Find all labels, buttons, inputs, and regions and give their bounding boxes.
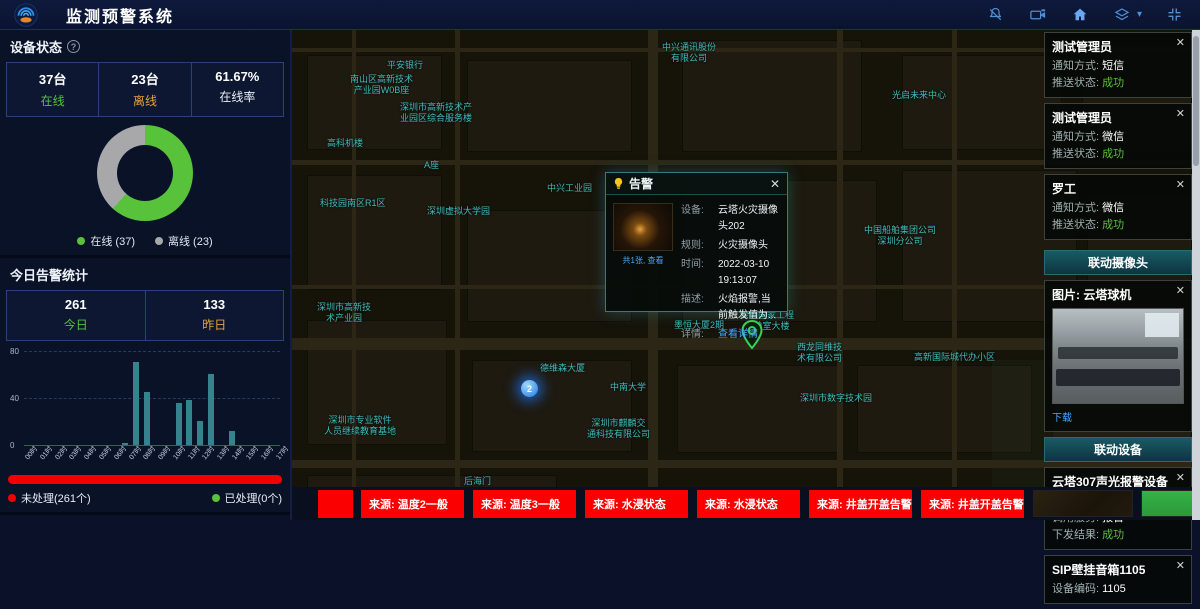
time-row-label: 时间: (681, 257, 713, 289)
x-tick-label: 11时 (185, 444, 202, 461)
x-tick-label: 10时 (171, 444, 188, 462)
unhandled-dot (8, 494, 16, 502)
x-tick-label: 12时 (200, 444, 217, 462)
map-place-label: 深圳市高新技 术产业园 (317, 302, 371, 324)
bar-17时 (205, 374, 216, 445)
linked-camera-header: 联动摄像头 (1044, 250, 1192, 275)
alarm-cluster-marker[interactable]: 2 (521, 380, 538, 397)
alert-ticker-bar: 来源: 温度2一般来源: 温度3一般来源: 水浸状态来源: 水浸状态来源: 井盖… (292, 487, 1200, 520)
desc-row-label: 描述: (681, 292, 713, 324)
close-icon[interactable]: ✕ (1176, 559, 1185, 572)
x-tick-label: 00时 (23, 444, 40, 462)
today-alarms-title: 今日告警统计 (6, 258, 284, 290)
left-stats-panel: 设备状态 ? 37台 在线 23台 离线 61.67% 在线率 在线 (37) … (0, 30, 292, 520)
map-place-label: 科技园南区R1区 (320, 198, 386, 209)
map-place-label: 南山区高新技术 产业园W0B座 (350, 74, 413, 96)
muted-bell-icon[interactable] (987, 6, 1005, 24)
map-place-label: 中国船舶集团公司 深圳分公司 (864, 225, 936, 247)
card-row: 通知方式: 微信 (1052, 200, 1184, 217)
card-row: 通知方式: 微信 (1052, 129, 1184, 146)
today-count: 261 (7, 297, 145, 312)
unhandled-progress-bar (8, 475, 282, 484)
alert-tile[interactable]: 来源: 水浸状态 (585, 490, 688, 518)
device-row-value: 云塔火灾摄像头202 (718, 203, 780, 235)
legend-online-dot (77, 237, 85, 245)
processing-legend: 未处理(261个) 已处理(0个) (8, 490, 282, 506)
alarm-thumb-column: 共1张, 查看 (613, 203, 673, 346)
notification-card: ✕测试管理员通知方式: 微信推送状态: 成功 (1044, 103, 1192, 169)
fire-snapshot-image[interactable] (613, 203, 673, 251)
notification-card: ✕测试管理员通知方式: 短信推送状态: 成功 (1044, 32, 1192, 98)
handled-legend: 已处理(0个) (212, 490, 282, 506)
alarm-bulb-icon (613, 177, 624, 190)
bar-16时 (195, 421, 206, 445)
x-tick-label: 17时 (274, 444, 291, 462)
donut-legend: 在线 (37) 离线 (23) (6, 233, 284, 249)
view-images-link[interactable]: 共1张, 查看 (613, 255, 673, 266)
card-name: 罗工 (1052, 180, 1184, 197)
today-count-cell: 261 今日 (7, 291, 145, 340)
card-row: 推送状态: 成功 (1052, 75, 1184, 92)
bar-series (24, 351, 280, 446)
bar-14时 (173, 403, 184, 445)
close-icon[interactable]: ✕ (1176, 471, 1185, 484)
fullscreen-icon[interactable] (1166, 6, 1184, 24)
yesterday-count-cell: 133 昨日 (145, 291, 284, 340)
today-label: 今日 (7, 316, 145, 333)
alarm-popup-body: 共1张, 查看 设备:云塔火灾摄像头202 规则:火灾摄像头 时间:2022-0… (606, 195, 787, 354)
close-icon[interactable]: ✕ (1176, 284, 1185, 297)
x-tick-label: 01时 (38, 444, 55, 462)
help-icon[interactable]: ? (67, 40, 80, 53)
map-place-label: 德维森大厦 (540, 363, 585, 374)
view-detail-link[interactable]: 查看详情 (718, 327, 758, 343)
card-name: 测试管理员 (1052, 109, 1184, 126)
right-notifications-panel: ✕测试管理员通知方式: 短信推送状态: 成功✕测试管理员通知方式: 微信推送状态… (1044, 32, 1192, 520)
alert-tile[interactable]: 来源: 温度3一般 (473, 490, 576, 518)
alert-tile-partial[interactable] (318, 490, 353, 518)
home-icon[interactable] (1071, 6, 1089, 24)
map-place-label: 西龙同维技 术有限公司 (797, 342, 842, 364)
vertical-scrollbar[interactable] (1192, 30, 1200, 520)
device-status-donut-chart (97, 125, 193, 221)
chevron-down-icon[interactable]: ▾ (1137, 9, 1142, 20)
camera-card: 图片: 云塔球机 ✕ 下载 (1044, 280, 1192, 432)
card-row: 设备编码: 1105 (1052, 581, 1184, 598)
map-place-label: 平安银行 (387, 60, 423, 71)
detail-row-label: 详情: (681, 327, 713, 343)
x-tick-label: 16时 (259, 444, 276, 462)
camera-card-title: 图片: 云塔球机 (1052, 286, 1184, 303)
bar-15时 (184, 400, 195, 445)
bar-10时 (131, 362, 142, 445)
today-alarms-title-text: 今日告警统计 (10, 265, 88, 284)
ytick-0: 0 (10, 441, 14, 450)
app-header: 监测预警系统 ▾ (0, 0, 1200, 30)
legend-offline-text: 离线 (23) (168, 233, 213, 249)
alert-tile[interactable]: 来源: 井盖开盖告警 (921, 490, 1024, 518)
donut-hole (117, 145, 173, 201)
map-place-label: 深圳虚拟大学园 (427, 206, 490, 217)
x-tick-label: 04时 (82, 444, 99, 462)
card-name: SIP壁挂音箱1105 (1052, 561, 1184, 578)
bottom-snapshot-thumbnail[interactable] (1033, 490, 1133, 517)
ytick-40: 40 (10, 394, 19, 403)
alert-tile[interactable]: 来源: 水浸状态 (697, 490, 800, 518)
legend-offline-dot (155, 237, 163, 245)
card-row: 下发结果: 成功 (1052, 527, 1184, 544)
yesterday-count: 133 (146, 297, 284, 312)
online-rate-cell: 61.67% 在线率 (191, 63, 283, 116)
online-count-cell: 37台 在线 (7, 63, 98, 116)
x-tick-label: 05时 (97, 444, 114, 462)
x-tick-label: 07时 (126, 444, 143, 462)
x-tick-label: 15时 (244, 444, 261, 462)
today-alarms-table: 261 今日 133 昨日 (6, 290, 284, 341)
legend-online-text: 在线 (37) (90, 233, 135, 249)
rule-row-label: 规则: (681, 238, 713, 254)
linked-device-header: 联动设备 (1044, 437, 1192, 462)
card-row: 通知方式: 短信 (1052, 58, 1184, 75)
online-rate: 61.67% (192, 69, 283, 84)
app-logo-icon (14, 3, 38, 27)
page-title: 监测预警系统 (66, 3, 174, 27)
map-place-label: 高科机楼 (327, 138, 363, 149)
map-place-label: 深圳市专业软件 人员继续教育基地 (324, 415, 396, 437)
ytick-80: 80 (10, 347, 19, 356)
rule-row-value: 火灾摄像头 (718, 238, 768, 254)
yesterday-label: 昨日 (146, 316, 284, 333)
device-row-label: 设备: (681, 203, 713, 235)
notification-card: ✕罗工通知方式: 微信推送状态: 成功 (1044, 174, 1192, 240)
x-tick-label: 09时 (156, 444, 173, 462)
close-icon[interactable]: ✕ (1176, 107, 1185, 120)
device-status-title-text: 设备状态 (10, 37, 62, 56)
bar-19时 (227, 431, 238, 445)
x-tick-label: 18时 (289, 444, 292, 462)
x-tick-label: 02时 (52, 444, 69, 462)
online-count: 37台 (7, 69, 98, 88)
desc-row-value: 火焰报警,当前触发值为... (718, 292, 780, 324)
x-tick-label: 06时 (112, 444, 129, 462)
unhandled-legend: 未处理(261个) (8, 490, 91, 506)
offline-count-cell: 23台 离线 (98, 63, 190, 116)
unhandled-text: 未处理(261个) (21, 490, 91, 506)
close-icon[interactable]: ✕ (1176, 36, 1185, 49)
camera-snapshot-image[interactable] (1052, 308, 1184, 404)
offline-label: 离线 (99, 92, 190, 109)
online-label: 在线 (7, 92, 98, 109)
header-icon-bar: ▾ (987, 6, 1184, 24)
alarm-popup: 告警 ✕ 共1张, 查看 设备:云塔火灾摄像头202 规则:火灾摄像头 时间:2… (605, 172, 788, 312)
linked-device-card: ✕SIP壁挂音箱1105设备编码: 1105 (1044, 555, 1192, 604)
alert-tile[interactable]: 来源: 井盖开盖告警 (809, 490, 912, 518)
card-name: 测试管理员 (1052, 38, 1184, 55)
x-tick-label: 13时 (215, 444, 232, 462)
alert-tile[interactable]: 来源: 温度2一般 (361, 490, 464, 518)
card-row: 推送状态: 成功 (1052, 217, 1184, 234)
video-camera-icon[interactable] (1029, 6, 1047, 24)
map-place-label: 中南大学 (610, 382, 646, 393)
map-place-label: 深圳市麒麟交 通科技有限公司 (587, 418, 650, 440)
alarm-detail-rows: 设备:云塔火灾摄像头202 规则:火灾摄像头 时间:2022-03-10 19:… (681, 203, 780, 346)
download-link[interactable]: 下载 (1052, 413, 1072, 424)
alarm-popup-header: 告警 ✕ (606, 173, 787, 195)
device-status-title: 设备状态 ? (6, 30, 284, 62)
online-rate-label: 在线率 (192, 88, 283, 105)
close-icon[interactable]: ✕ (1176, 178, 1185, 191)
map-place-label: 深圳市高新技术产 业园区综合服务楼 (400, 102, 472, 124)
legend-offline: 离线 (23) (155, 233, 213, 249)
map-place-label: 中兴工业园 (547, 183, 592, 194)
scrollbar-thumb[interactable] (1193, 36, 1199, 166)
layers-icon[interactable] (1113, 6, 1131, 24)
map-place-label: 中兴通讯股份 有限公司 (662, 42, 716, 64)
time-row-value: 2022-03-10 19:13:07 (718, 257, 780, 289)
map-place-label: 后海门 (464, 476, 491, 487)
map-place-label: A座 (424, 160, 439, 171)
card-row: 推送状态: 成功 (1052, 146, 1184, 163)
device-status-table: 37台 在线 23台 离线 61.67% 在线率 (6, 62, 284, 117)
handled-dot (212, 494, 220, 502)
close-icon[interactable]: ✕ (770, 177, 780, 191)
map-place-label: 深圳市数字技术园 (800, 393, 872, 404)
handled-text: 已处理(0个) (225, 490, 282, 506)
map-place-label: 高新国际城代办小区 (914, 352, 995, 363)
offline-count: 23台 (99, 69, 190, 88)
bar-11时 (141, 392, 152, 445)
x-tick-label: 08时 (141, 444, 158, 462)
hourly-alarm-bar-chart: 80 40 0 00时01时02时03时04时05时06时07时08时09时10… (8, 347, 282, 467)
month-alarms-title: 本月告警统计 (6, 515, 284, 520)
x-tick-label: 03时 (67, 444, 84, 462)
x-axis-labels: 00时01时02时03时04时05时06时07时08时09时10时11时12时1… (24, 448, 280, 458)
legend-online: 在线 (37) (77, 233, 135, 249)
map-place-label: 光启未来中心 (892, 90, 946, 101)
alarm-popup-title: 告警 (629, 175, 653, 192)
